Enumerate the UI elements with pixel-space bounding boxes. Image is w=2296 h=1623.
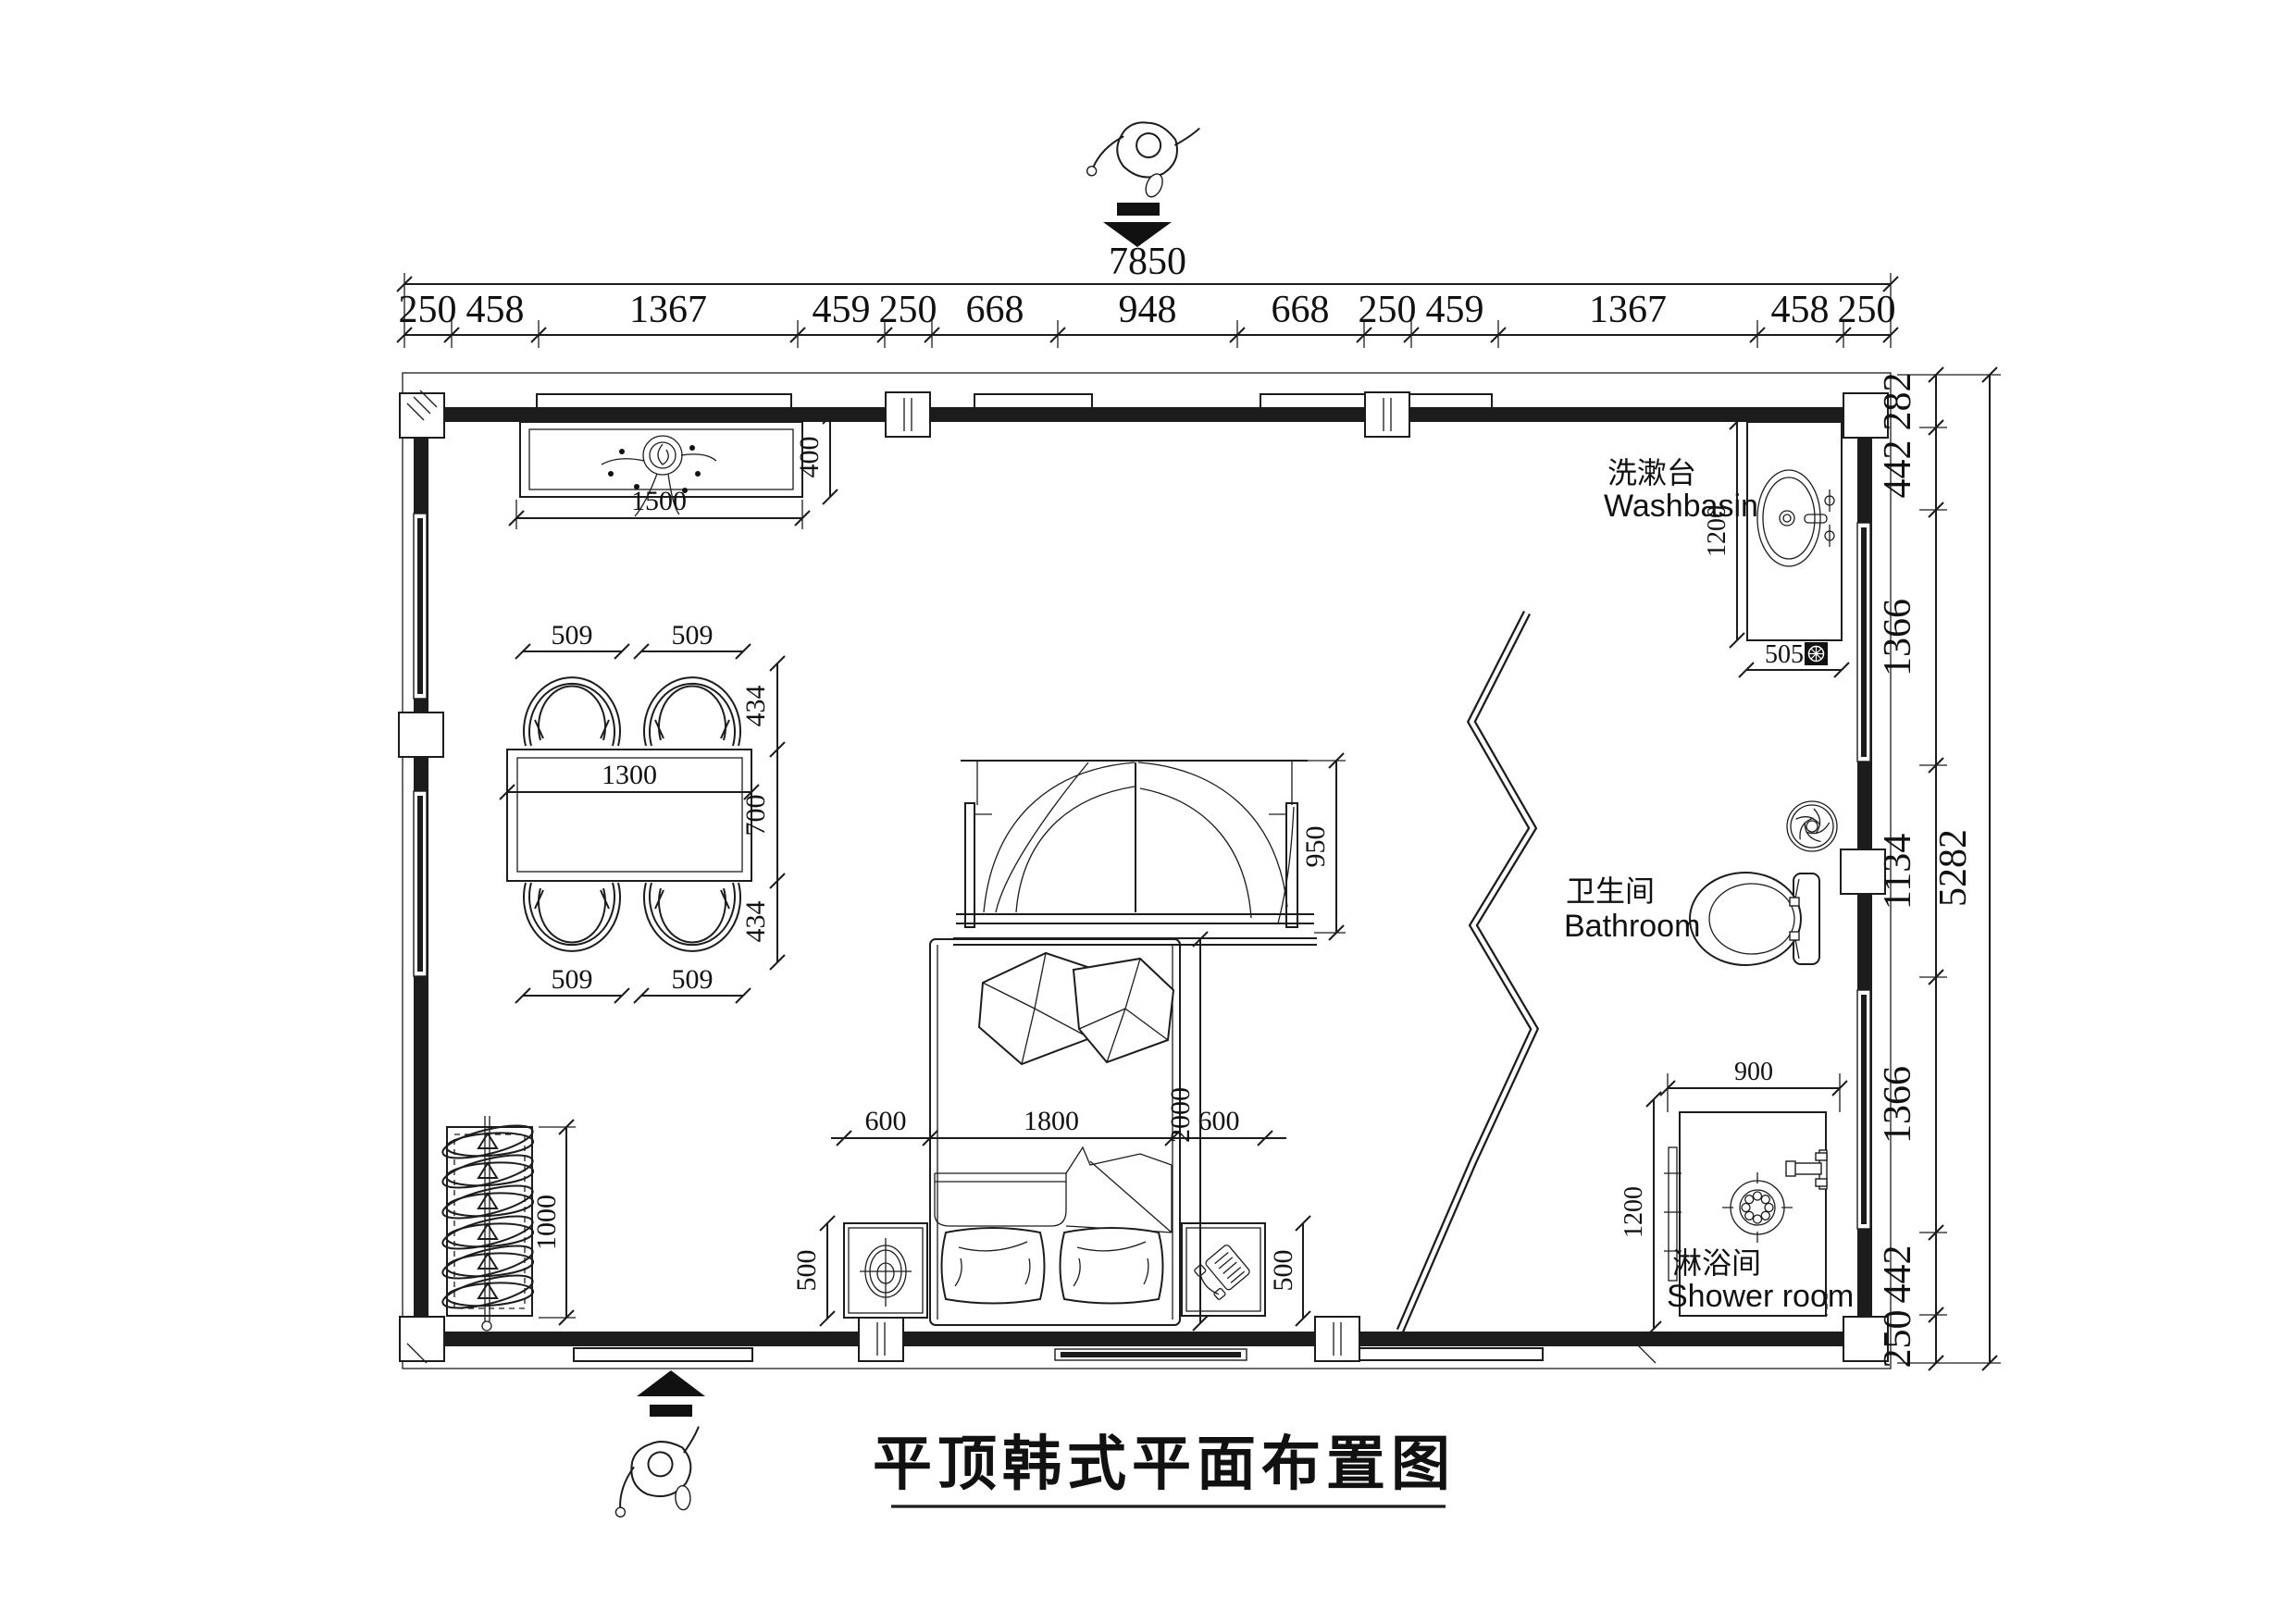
top-dimension-chain: 7850 250 458 1367 459 250 668 948 668 25…: [397, 241, 1898, 348]
exhaust-fan-icon: [1787, 801, 1837, 851]
dim-label: 950: [1300, 826, 1331, 868]
dim-label: 282: [1877, 373, 1919, 431]
bathroom-area: 卫生间 Bathroom: [1564, 801, 1837, 965]
dim-label: 442: [1877, 1245, 1919, 1304]
dim-label: 509: [672, 964, 714, 995]
shower-head-icon: [1786, 1150, 1827, 1189]
dim-label: 509: [552, 620, 593, 650]
floor-drain-icon: [1805, 642, 1828, 665]
faucet-icon: [1805, 514, 1827, 523]
wall-post: [1315, 1317, 1359, 1361]
canopy-post-right: [1286, 803, 1297, 927]
toilet-bowl: [1690, 873, 1801, 965]
window-bottom-1: [1351, 1348, 1543, 1360]
wardrobe-dim: 1000: [531, 1120, 576, 1325]
window-right-2: [1857, 990, 1870, 1229]
window-left-1: [414, 514, 427, 699]
throw-pillow: [1074, 959, 1173, 1062]
dim-label: 1367: [1589, 289, 1667, 331]
entry-top: [1085, 114, 1199, 247]
shower-label-en: Shower room: [1667, 1279, 1854, 1314]
corner-post: [400, 393, 444, 438]
dim-label: 1200: [1620, 1186, 1648, 1238]
zigzag-partition: [1400, 613, 1534, 1331]
dim-label: 442: [1877, 440, 1919, 499]
wardrobe-rack: 1000: [440, 1116, 576, 1331]
entry-arrow-bar: [1117, 203, 1160, 216]
shower-drain-icon: [1722, 1172, 1793, 1243]
bathroom-label-en: Bathroom: [1564, 909, 1700, 944]
bathroom-label-zh: 卫生间: [1566, 874, 1655, 908]
rail-end: [482, 1321, 491, 1331]
person-figure-bottom: [599, 1427, 723, 1532]
toilet: [1690, 873, 1819, 965]
floor-plan-page: 7850 250 458 1367 459 250 668 948 668 25…: [0, 0, 2296, 1623]
dim-label: 1300: [602, 760, 657, 790]
plant-cabinet: 1500 400: [509, 409, 838, 529]
wall-post: [859, 1317, 903, 1361]
chair: [524, 677, 620, 746]
floor-plan-drawing: 7850 250 458 1367 459 250 668 948 668 25…: [0, 0, 2296, 1623]
shower-room-area: 900 1200 淋浴间 Shower room: [1620, 1058, 1854, 1336]
dim-label: 1800: [1024, 1106, 1079, 1136]
dim-label: 1366: [1877, 599, 1919, 676]
washbasin-area: 1200 505 洗漱台 Washbasin: [1604, 415, 1849, 677]
dim-label: 2000: [1165, 1087, 1196, 1143]
entry-arrow-up-icon: [637, 1370, 705, 1396]
dim-label: 434: [740, 901, 771, 943]
dim-label: 250: [1877, 1310, 1919, 1369]
chair: [644, 677, 740, 746]
basin-icon: [1757, 470, 1834, 566]
corner-post: [400, 1317, 444, 1361]
dim-label: 500: [791, 1250, 822, 1292]
window-bottom-2: [1055, 1349, 1247, 1360]
window-top-2: [974, 394, 1092, 408]
entry-bottom: [599, 1370, 723, 1531]
dim-label: 505: [1765, 640, 1804, 669]
dim-label: 1367: [629, 289, 707, 331]
drawing-title: 平顶韩式平面布置图: [873, 1431, 1456, 1506]
dim-label: 458: [466, 289, 525, 331]
dim-label: 459: [1426, 289, 1484, 331]
blanket: [935, 1147, 1172, 1233]
hanger-icon: [440, 1119, 535, 1164]
dim-label: 250: [1359, 289, 1417, 331]
window-top-1: [537, 394, 791, 408]
dim-label: 1000: [531, 1195, 562, 1250]
dim-label: 900: [1734, 1058, 1773, 1086]
entry-arrow-bar: [650, 1405, 692, 1417]
dim-label: 250: [879, 289, 937, 331]
chair: [524, 883, 620, 951]
bed-area: 950 600 1800 600 2000 500 500: [791, 753, 1346, 1331]
washbasin-dims: 1200 505: [1703, 415, 1849, 677]
dim-label: 1134: [1877, 834, 1919, 910]
dim-label: 458: [1771, 289, 1830, 331]
dim-label: 1500: [631, 486, 687, 516]
wall-post: [886, 392, 930, 437]
dim-label: 600: [865, 1106, 907, 1136]
bed-pillow: [1061, 1228, 1163, 1304]
wall-post: [1365, 392, 1409, 437]
right-dimension-chain: 282 442 1366 1134 1366 442 250 5282: [1877, 367, 2001, 1370]
dim-label: 1366: [1877, 1066, 1919, 1144]
wall-post: [399, 712, 443, 757]
overall-width-label: 7850: [1109, 241, 1186, 283]
canopy-post-left: [965, 803, 974, 927]
person-figure-top: [1085, 114, 1199, 204]
dim-label: 250: [399, 289, 457, 331]
dim-label: 459: [813, 289, 871, 331]
dim-label: 434: [740, 686, 771, 727]
page-title: 平顶韩式平面布置图: [873, 1431, 1456, 1497]
dim-label: 700: [740, 795, 771, 836]
entry-door-leaf: [574, 1348, 752, 1361]
dim-label: 668: [1272, 289, 1330, 331]
bed-canopy: [953, 761, 1317, 945]
dim-label: 250: [1838, 289, 1896, 331]
cabinet-dims: 1500 400: [509, 409, 838, 529]
shower-label-zh: 淋浴间: [1672, 1246, 1761, 1280]
dim-label: 509: [552, 964, 593, 995]
dim-label: 509: [672, 620, 714, 650]
bed-pillow: [942, 1228, 1045, 1304]
nightstand-right: [1182, 1223, 1265, 1316]
washbasin-label-en: Washbasin: [1604, 489, 1758, 524]
washbasin-label-zh: 洗漱台: [1607, 456, 1696, 489]
dim-label: 600: [1198, 1106, 1240, 1136]
dining-set: 1300 509 509 509 509 434 700 434: [500, 620, 785, 1003]
corner-hatch: [1636, 1344, 1656, 1363]
dim-label: 500: [1268, 1250, 1298, 1292]
dim-label: 668: [966, 289, 1024, 331]
overall-height-label: 5282: [1932, 829, 1975, 907]
window-right-1: [1857, 523, 1870, 762]
dim-label: 948: [1119, 289, 1177, 331]
window-left-2: [414, 791, 427, 976]
chair: [644, 883, 740, 951]
dim-label: 400: [794, 437, 825, 478]
nightstand-left: [844, 1223, 927, 1318]
